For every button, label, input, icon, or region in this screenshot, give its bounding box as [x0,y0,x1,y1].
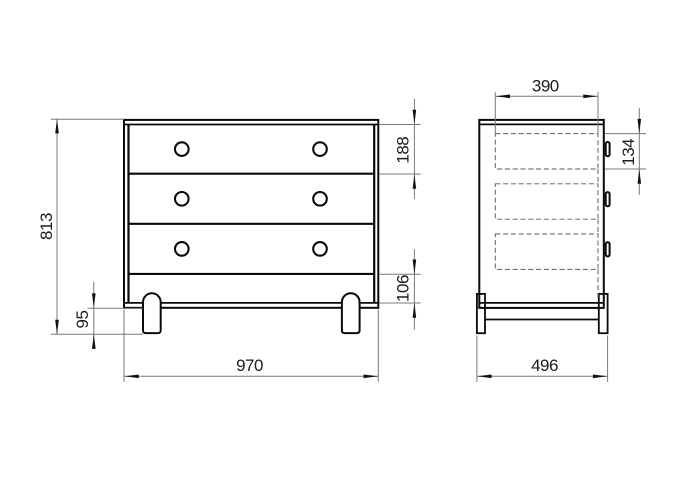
svg-text:188: 188 [394,137,413,164]
svg-text:134: 134 [619,139,638,166]
svg-text:95: 95 [73,311,92,329]
svg-text:970: 970 [236,356,263,375]
svg-text:390: 390 [532,76,559,95]
svg-text:106: 106 [394,275,413,302]
svg-text:813: 813 [37,213,56,240]
svg-text:496: 496 [531,356,558,375]
